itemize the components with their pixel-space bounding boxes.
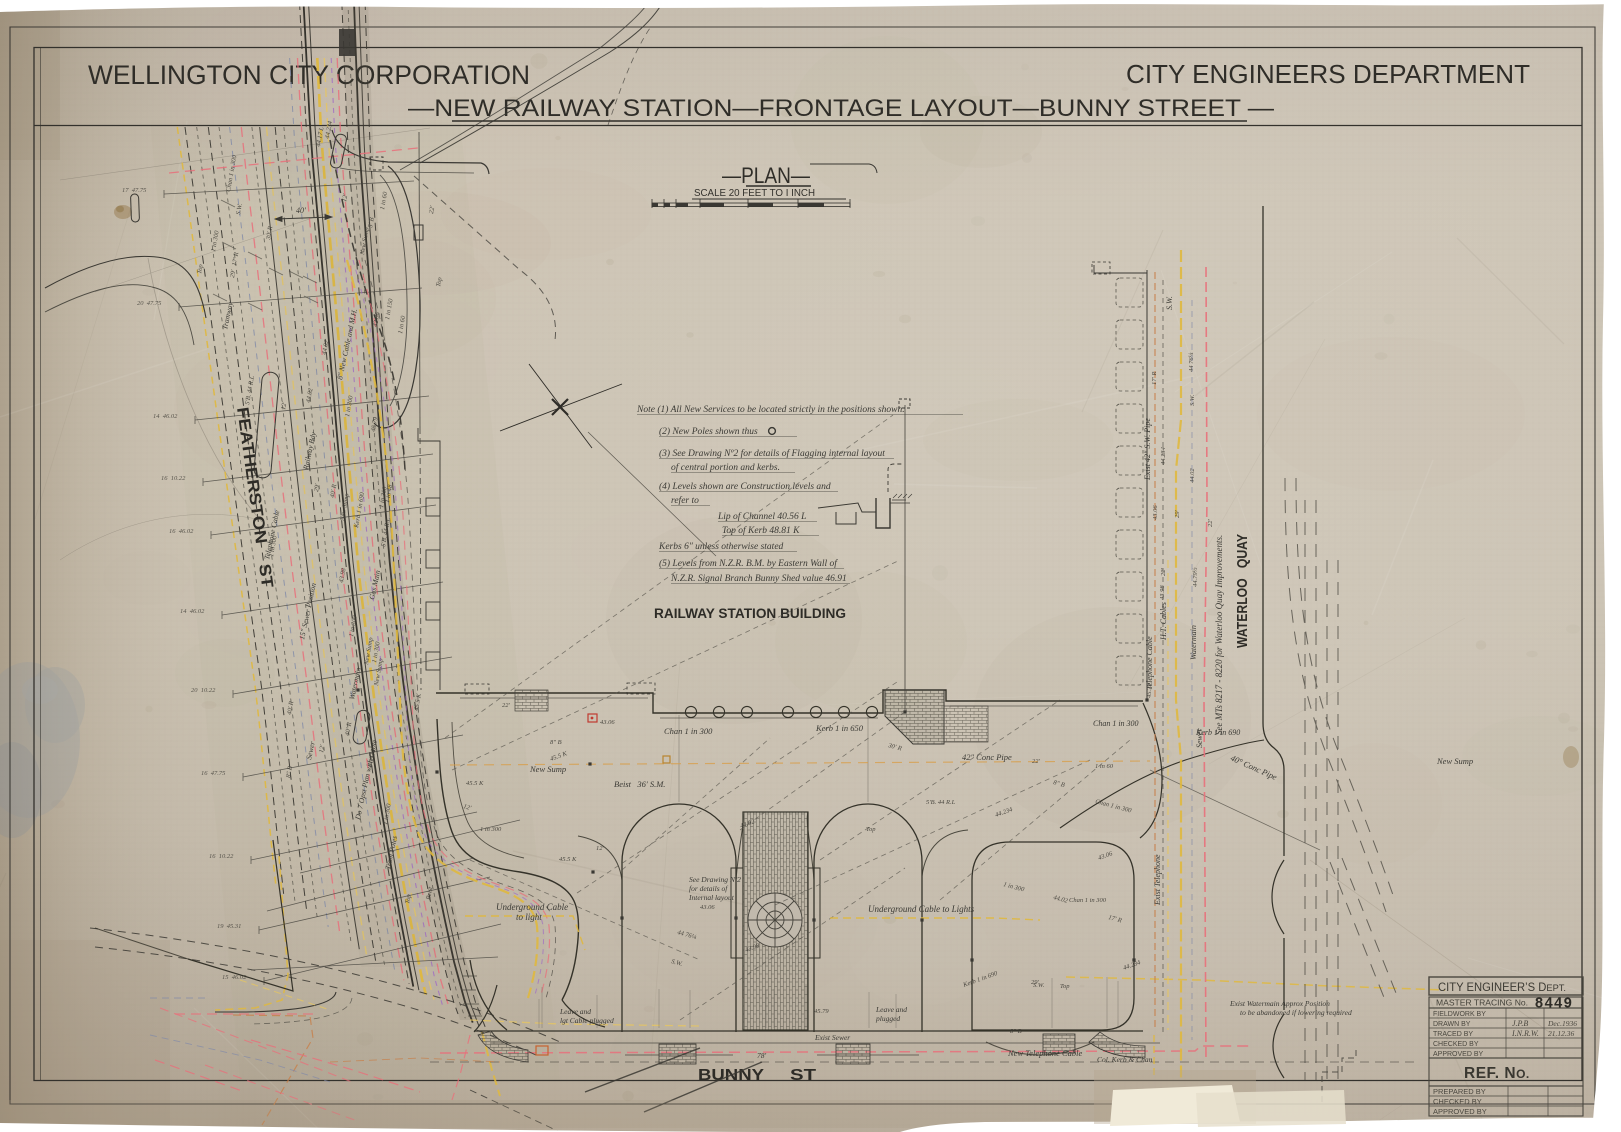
svg-text:8″ B: 8″ B <box>1010 1028 1022 1035</box>
svg-text:Internal layout: Internal layout <box>688 893 735 902</box>
svg-text:CHECKED BY: CHECKED BY <box>1433 1097 1482 1106</box>
svg-text:22′: 22′ <box>1032 758 1041 765</box>
svg-text:43.06: 43.06 <box>700 904 715 911</box>
svg-text:—PLAN—: —PLAN— <box>722 163 810 188</box>
svg-text:for details of: for details of <box>689 884 728 893</box>
svg-text:45.5 K: 45.5 K <box>466 780 484 787</box>
svg-text:Dec.1936: Dec.1936 <box>1547 1019 1577 1028</box>
svg-text:Leave and: Leave and <box>559 1007 591 1016</box>
svg-text:Kerbs 6″ unless otherwise sta: Kerbs 6″ unless otherwise stated <box>658 542 784 552</box>
svg-text:Kerb 1 in 690: Kerb 1 in 690 <box>1195 728 1240 737</box>
svg-text:See Drawing Nº2: See Drawing Nº2 <box>689 875 741 884</box>
svg-text:1 in 60: 1 in 60 <box>1095 763 1114 770</box>
svg-text:I.N.R.W.: I.N.R.W. <box>1511 1029 1539 1038</box>
svg-text:New Sump: New Sump <box>1436 756 1473 766</box>
svg-text:15 46.02: 15 46.02 <box>222 974 247 981</box>
svg-text:5′B. 44 R.L: 5′B. 44 R.L <box>926 799 956 806</box>
svg-text:(2) New Poles shown thus: (2) New Poles shown thus <box>659 426 758 437</box>
svg-text:16 47.75: 16 47.75 <box>201 770 226 777</box>
svg-text:lgt Cable plugged: lgt Cable plugged <box>560 1016 614 1025</box>
svg-text:PREPARED BY: PREPARED BY <box>1433 1087 1486 1096</box>
svg-text:21.12.36: 21.12.36 <box>1548 1029 1575 1038</box>
svg-text:Lip of Channel 40.56 L: Lip of Channel 40.56 L <box>717 511 806 522</box>
svg-text:Top: Top <box>866 826 876 833</box>
svg-text:New Sump: New Sump <box>529 764 566 774</box>
svg-text:Telephone Cable: Telephone Cable <box>1145 636 1154 690</box>
svg-text:REF. NO.: REF. NO. <box>1464 1065 1530 1082</box>
svg-text:20 47.75: 20 47.75 <box>137 300 162 307</box>
svg-text:RAILWAY STATION BUILDING: RAILWAY STATION BUILDING <box>654 606 846 621</box>
svg-text:Col. Kerb & Chan: Col. Kerb & Chan <box>1097 1055 1153 1064</box>
svg-text:45.79: 45.79 <box>814 1008 829 1015</box>
svg-text:MASTER TRACING No.: MASTER TRACING No. <box>1436 998 1528 1008</box>
svg-text:CITY ENGINEERS DEPARTMENT: CITY ENGINEERS DEPARTMENT <box>1126 59 1530 89</box>
svg-text:Exist Watermain Approx Positi: Exist Watermain Approx Position <box>1229 999 1330 1008</box>
svg-text:FIELDWORK BY: FIELDWORK BY <box>1433 1011 1486 1018</box>
svg-text:S.W.: S.W. <box>1189 394 1196 406</box>
svg-text:1 in 300: 1 in 300 <box>480 826 502 833</box>
svg-text:Top of Kerb 48.81 K: Top of Kerb 48.81 K <box>722 525 800 536</box>
svg-text:45.79: 45.79 <box>1146 683 1153 698</box>
svg-text:—NEW RAILWAY STATION—FRONTAGE: —NEW RAILWAY STATION—FRONTAGE LAYOUT—BUN… <box>408 95 1274 122</box>
svg-text:Watermain: Watermain <box>1189 625 1198 660</box>
svg-text:APPROVED BY: APPROVED BY <box>1433 1107 1487 1116</box>
svg-text:Chan 1 in 300: Chan 1 in 300 <box>1069 897 1107 904</box>
svg-text:CHECKED BY: CHECKED BY <box>1433 1041 1479 1048</box>
svg-text:22′: 22′ <box>1160 568 1167 577</box>
svg-text:Underground Cable: Underground Cable <box>496 902 568 912</box>
svg-text:plugged: plugged <box>875 1014 900 1023</box>
svg-text:43.06: 43.06 <box>600 719 615 726</box>
svg-text:to be abandoned if lowering: to be abandoned if lowering required <box>1240 1008 1352 1017</box>
svg-text:22′: 22′ <box>1207 519 1214 528</box>
svg-text:TRACED BY: TRACED BY <box>1433 1031 1473 1038</box>
svg-text:19 45.31: 19 45.31 <box>217 923 241 930</box>
svg-text:45.5 K: 45.5 K <box>559 856 577 863</box>
svg-text:44.02: 44.02 <box>1189 468 1196 483</box>
svg-text:Exist Sewer: Exist Sewer <box>814 1033 850 1042</box>
svg-text:12′: 12′ <box>596 845 605 852</box>
svg-text:14 46.02: 14 46.02 <box>153 413 178 420</box>
svg-text:17 47.75: 17 47.75 <box>122 187 147 194</box>
svg-text:of central portion and kerbs.: of central portion and kerbs. <box>671 462 780 473</box>
svg-text:20 10.22: 20 10.22 <box>191 687 216 694</box>
svg-text:16 46.02: 16 46.02 <box>169 528 194 535</box>
svg-text:40′: 40′ <box>296 206 306 215</box>
svg-text:refer to: refer to <box>671 495 699 506</box>
svg-text:ST: ST <box>790 1067 816 1084</box>
svg-text:Chan 1 in 300: Chan 1 in 300 <box>664 726 713 736</box>
svg-text:N.Z.R. Signal Branch Bunny She: N.Z.R. Signal Branch Bunny Shed value 46… <box>670 574 847 584</box>
svg-text:CITY ENGINEER’S DEPT.: CITY ENGINEER’S DEPT. <box>1438 982 1566 994</box>
svg-text:Exist 42″ S.W. Pipe: Exist 42″ S.W. Pipe <box>1143 418 1152 481</box>
svg-text:43.06: 43.06 <box>1152 505 1159 520</box>
svg-text:44.79½: 44.79½ <box>1192 567 1199 587</box>
svg-text:Top: Top <box>1060 983 1070 990</box>
svg-text:Exist Telephone: Exist Telephone <box>1153 854 1162 906</box>
svg-text:44 76¼: 44 76¼ <box>1188 352 1195 372</box>
svg-text:H.T. Cables: H.T. Cables <box>1159 602 1168 641</box>
svg-text:Note (1) All New Services to b: Note (1) All New Services to be located … <box>636 404 905 415</box>
svg-text:78′: 78′ <box>757 1051 767 1060</box>
svg-text:New Telephone Cable: New Telephone Cable <box>1007 1048 1083 1058</box>
svg-text:J.P.B: J.P.B <box>1512 1019 1528 1028</box>
svg-text:(4) Levels shown are Construct: (4) Levels shown are Construction levels… <box>659 481 831 492</box>
svg-text:29′: 29′ <box>1174 510 1181 519</box>
svg-text:16 10.22: 16 10.22 <box>209 853 234 860</box>
svg-text:43.98: 43.98 <box>1159 585 1166 600</box>
svg-text:8″ B: 8″ B <box>550 739 562 746</box>
svg-text:(3) See Drawing Nº2 for detail: (3) See Drawing Nº2 for details of Flagg… <box>659 448 885 459</box>
svg-text:14 46.02: 14 46.02 <box>180 608 205 615</box>
svg-text:to light: to light <box>516 912 542 922</box>
svg-text:S.W.: S.W. <box>1165 296 1174 310</box>
svg-text:APPROVED BY: APPROVED BY <box>1433 1051 1484 1058</box>
svg-text:(5) Levels from N.Z.R. B.M. by: (5) Levels from N.Z.R. B.M. by Eastern W… <box>659 558 838 569</box>
svg-text:16 10.22: 16 10.22 <box>161 475 186 482</box>
svg-text:22′: 22′ <box>502 702 511 709</box>
svg-text:S.W.: S.W. <box>1033 982 1045 989</box>
svg-text:17′ R: 17′ R <box>1151 371 1158 385</box>
svg-text:SCALE 20 FEET TO I INCH: SCALE 20 FEET TO I INCH <box>694 188 815 199</box>
svg-text:Chan 1 in 300: Chan 1 in 300 <box>1093 719 1139 728</box>
svg-text:44.234: 44.234 <box>1160 446 1167 465</box>
svg-text:42″ Conc Pipe: 42″ Conc Pipe <box>962 752 1012 762</box>
svg-text:WELLINGTON CITY CORPORATION: WELLINGTON CITY CORPORATION <box>88 60 530 90</box>
svg-text:See MTs 8217 - 8220 for Waterl: See MTs 8217 - 8220 for Waterloo Quay Im… <box>1214 535 1224 735</box>
svg-text:Kerb 1 in 650: Kerb 1 in 650 <box>815 723 864 733</box>
svg-text:Leave and: Leave and <box>875 1005 907 1014</box>
svg-text:Beist 36′ S.M.: Beist 36′ S.M. <box>614 779 665 789</box>
svg-text:WATERLOO QUAY: WATERLOO QUAY <box>1234 534 1251 648</box>
svg-text:Underground Cable to Lights: Underground Cable to Lights <box>868 904 975 914</box>
svg-text:DRAWN BY: DRAWN BY <box>1433 1021 1471 1028</box>
svg-text:8449: 8449 <box>1535 996 1573 1012</box>
